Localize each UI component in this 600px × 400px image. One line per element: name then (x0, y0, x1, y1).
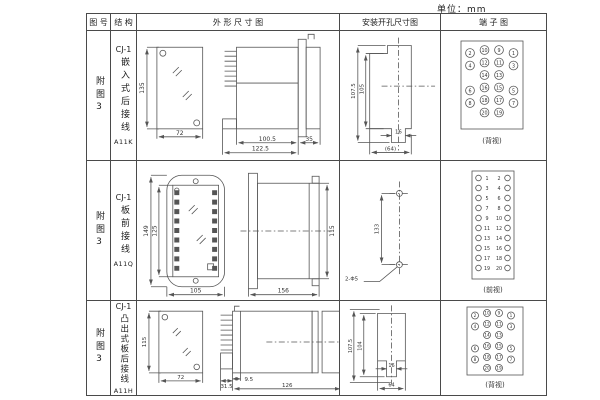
terminal-pin: 5 (512, 88, 515, 94)
terminal-pin: 15 (496, 85, 502, 91)
dim-label: 149 (143, 225, 150, 237)
dimension-table: 图 号 结 构 外 形 尺 寸 图 安装开孔尺寸图 端 子 图 附图3 CJ-1… (86, 13, 547, 396)
header-terminal: 端 子 图 (441, 14, 546, 31)
terminal-pins: 1 2 3 4 5 6 7 8 9 10 11 12 13 14 15 16 1 (484, 175, 502, 271)
outline-drawing-a11q: 149 125 105 156 115 (137, 161, 339, 301)
dim-labels: 107.5 104 16 64 (348, 339, 395, 389)
terminal-pin: 9 (485, 215, 488, 221)
terminal-pin: 19 (496, 366, 502, 371)
terminal-pin: 3 (512, 63, 515, 69)
dim-label: (64) (385, 146, 396, 152)
terminal-pin: 6 (474, 346, 477, 351)
terminal-pin: 17 (496, 97, 502, 103)
terminal-pin: 5 (485, 195, 488, 201)
terminal-pin: 4 (497, 185, 500, 191)
fig-no-cell-row3: 附图3 (87, 301, 111, 395)
front-view (149, 311, 203, 383)
terminal-cell-row2: 1 2 3 4 5 6 7 8 9 10 11 12 13 14 15 16 1 (441, 161, 546, 301)
terminal-pin: 6 (468, 88, 471, 94)
header-outline: 外 形 尺 寸 图 (137, 14, 340, 31)
install-drawing-a11k: 107.5 105 16 (64) (340, 31, 440, 161)
dim-label: 107.5 (351, 83, 357, 99)
install-drawing-a11h: 107.5 104 16 64 (340, 301, 440, 395)
fig-no-row3: 附图3 (94, 328, 103, 368)
structure-cell-row1: CJ-1 嵌入式后接线 A11K (111, 31, 137, 161)
outline-drawing-a11k: 135 72 100.5 35 122.5 (137, 31, 339, 161)
install-cell-row3: 107.5 104 16 64 (340, 301, 441, 395)
dim-labels: 133 2-Φ5 (345, 223, 381, 282)
terminal-pin: 14 (484, 333, 490, 338)
dim-label: 122.5 (252, 145, 269, 152)
terminal-pin: 10 (481, 47, 487, 53)
model-prefix-row1: CJ-1 (116, 45, 132, 54)
terminal-pin: 13 (496, 333, 502, 338)
terminal-pin: 20 (496, 265, 502, 271)
dim-label: 135 (139, 82, 146, 94)
dim-label: 72 (176, 129, 184, 136)
terminal-pin: 2 (497, 175, 500, 181)
dim-label: 105 (359, 83, 365, 93)
terminal-pin: 4 (474, 324, 477, 329)
dim-label: 156 (278, 287, 290, 294)
terminal-pin: 14 (481, 72, 487, 78)
header-structure: 结 构 (111, 14, 137, 31)
terminal-pin: 7 (510, 357, 513, 362)
terminal-pin: 13 (496, 72, 502, 78)
dim-label: 31.5 (220, 384, 232, 390)
dim-label: 64 (388, 383, 394, 389)
dim-label: 100.5 (259, 135, 276, 142)
terminal-pins: 2 10 9 1 4 12 11 3 14 13 6 16 15 5 8 18 (474, 311, 513, 371)
front-view (147, 47, 203, 139)
fig-no-cell-row1: 附图3 (87, 31, 111, 161)
terminal-pin: 1 (485, 175, 488, 181)
dim-label: 105 (190, 287, 202, 294)
fig-no-row1: 附图3 (94, 76, 103, 116)
dim-label: 35 (305, 135, 313, 142)
model-code-row2: A11Q (114, 260, 134, 268)
terminal-pin: 14 (496, 235, 502, 241)
terminal-pin: 6 (497, 195, 500, 201)
structure-text-row1: 嵌入式后接线 (119, 57, 128, 135)
dim-label: 16 (388, 363, 394, 369)
terminal-pin: 11 (496, 322, 502, 327)
terminal-pin: 12 (484, 322, 490, 327)
header-install: 安装开孔尺寸图 (340, 14, 441, 31)
view-label: (前视) (483, 285, 503, 294)
terminal-pin: 7 (485, 205, 488, 211)
outline-drawing-a11h: 115 72 31.5 9.5 126 (137, 301, 339, 395)
dim-labels: 115 72 31.5 9.5 126 (142, 337, 293, 390)
install-cell-row1: 107.5 105 16 (64) (340, 31, 441, 161)
manual-page: 单位：mm 图 号 结 构 外 形 尺 寸 图 安装开孔尺寸图 端 子 图 附图… (0, 0, 600, 400)
model-prefix-row3: CJ-1 (116, 302, 132, 311)
terminal-pin: 18 (484, 355, 490, 360)
dim-label: 9.5 (244, 377, 253, 383)
terminal-pin: 9 (498, 311, 501, 316)
view-label: (背视) (485, 380, 505, 389)
terminal-pin: 4 (468, 63, 471, 69)
terminal-pin: 18 (496, 255, 502, 261)
dim-label: 126 (282, 383, 293, 389)
terminal-pin: 2 (474, 313, 477, 318)
structure-cell-row3: CJ-1 凸出式板后接线 A11H (111, 301, 137, 395)
terminal-pin: 12 (496, 225, 502, 231)
terminal-pin: 16 (484, 344, 490, 349)
terminal-pin: 13 (484, 235, 490, 241)
terminal-pin: 19 (496, 110, 502, 116)
terminal-pin: 9 (497, 47, 500, 53)
hole-pattern (364, 181, 410, 281)
outline-cell-row3: 115 72 31.5 9.5 126 (137, 301, 340, 395)
dim-labels: 149 125 105 156 115 (143, 225, 336, 295)
structure-text-row2: 板前接线 (119, 205, 128, 257)
fig-no-cell-row2: 附图3 (87, 161, 111, 301)
dim-label: 72 (177, 375, 184, 381)
terminal-drawing-a11h: 2 10 9 1 4 12 11 3 14 13 6 16 15 5 8 18 (441, 301, 546, 395)
terminal-pins: 2 10 9 1 4 12 11 3 14 13 6 16 15 5 8 18 (468, 47, 515, 116)
side-view (240, 173, 332, 296)
terminal-pin: 7 (512, 100, 515, 106)
terminal-pin: 2 (468, 50, 471, 56)
model-code-row3: A11H (114, 387, 134, 395)
dim-labels: 135 72 100.5 35 122.5 (139, 82, 313, 153)
side-view (221, 306, 339, 391)
front-view (151, 175, 225, 296)
hole-spec-label: 2-Φ5 (345, 276, 358, 282)
terminal-pin: 8 (474, 357, 477, 362)
terminal-drawing-a11q: 1 2 3 4 5 6 7 8 9 10 11 12 13 14 15 16 1 (441, 161, 546, 301)
terminal-pin: 18 (481, 97, 487, 103)
terminal-cell-row3: 2 10 9 1 4 12 11 3 14 13 6 16 15 5 8 18 (441, 301, 546, 395)
terminal-pin: 15 (484, 245, 490, 251)
fig-no-row2: 附图3 (94, 211, 103, 251)
terminal-pin: 8 (497, 205, 500, 211)
install-drawing-a11q: 133 2-Φ5 (340, 161, 440, 301)
terminal-pin: 10 (496, 215, 502, 221)
dim-label: 115 (329, 225, 336, 237)
terminal-pin: 3 (510, 324, 513, 329)
terminal-pin: 5 (510, 346, 513, 351)
terminal-pin: 11 (496, 60, 502, 66)
terminal-pin: 16 (496, 245, 502, 251)
terminal-drawing-a11k: 2 10 9 1 4 12 11 3 14 13 6 16 15 5 8 18 (441, 31, 546, 161)
terminal-pin: 11 (484, 225, 490, 231)
terminal-pin: 3 (485, 185, 488, 191)
view-label: (背视) (482, 136, 502, 145)
model-prefix-row2: CJ-1 (116, 193, 132, 202)
terminal-pin: 20 (484, 366, 490, 371)
terminal-cell-row1: 2 10 9 1 4 12 11 3 14 13 6 16 15 5 8 18 (441, 31, 546, 161)
dim-labels: 107.5 105 16 (64) (351, 83, 403, 152)
terminal-pin: 12 (481, 60, 487, 66)
terminal-pin: 1 (512, 50, 515, 56)
terminal-pin: 15 (496, 344, 502, 349)
dim-label: 104 (357, 341, 363, 350)
dim-label: 115 (142, 337, 148, 347)
structure-text-row3: 凸出式板后接线 (119, 314, 128, 384)
terminal-pin: 8 (468, 100, 471, 106)
dim-label: 125 (151, 225, 158, 237)
header-fig-no: 图 号 (87, 14, 111, 31)
terminal-pin: 17 (484, 255, 490, 261)
dim-label: 107.5 (348, 339, 354, 353)
model-code-row1: A11K (114, 138, 133, 146)
terminal-pin: 19 (484, 265, 490, 271)
terminal-pin: 20 (481, 110, 487, 116)
outline-cell-row2: 149 125 105 156 115 (137, 161, 340, 301)
structure-cell-row2: CJ-1 板前接线 A11Q (111, 161, 137, 301)
outline-cell-row1: 135 72 100.5 35 122.5 (137, 31, 340, 161)
terminal-pin: 16 (481, 85, 487, 91)
cutout-shape (358, 37, 435, 154)
terminal-pin: 1 (510, 313, 513, 318)
install-cell-row2: 133 2-Φ5 (340, 161, 441, 301)
terminal-pin: 17 (496, 355, 502, 360)
terminal-pin: 10 (484, 311, 490, 316)
dim-label: 16 (395, 129, 402, 135)
dim-label: 133 (375, 223, 381, 234)
